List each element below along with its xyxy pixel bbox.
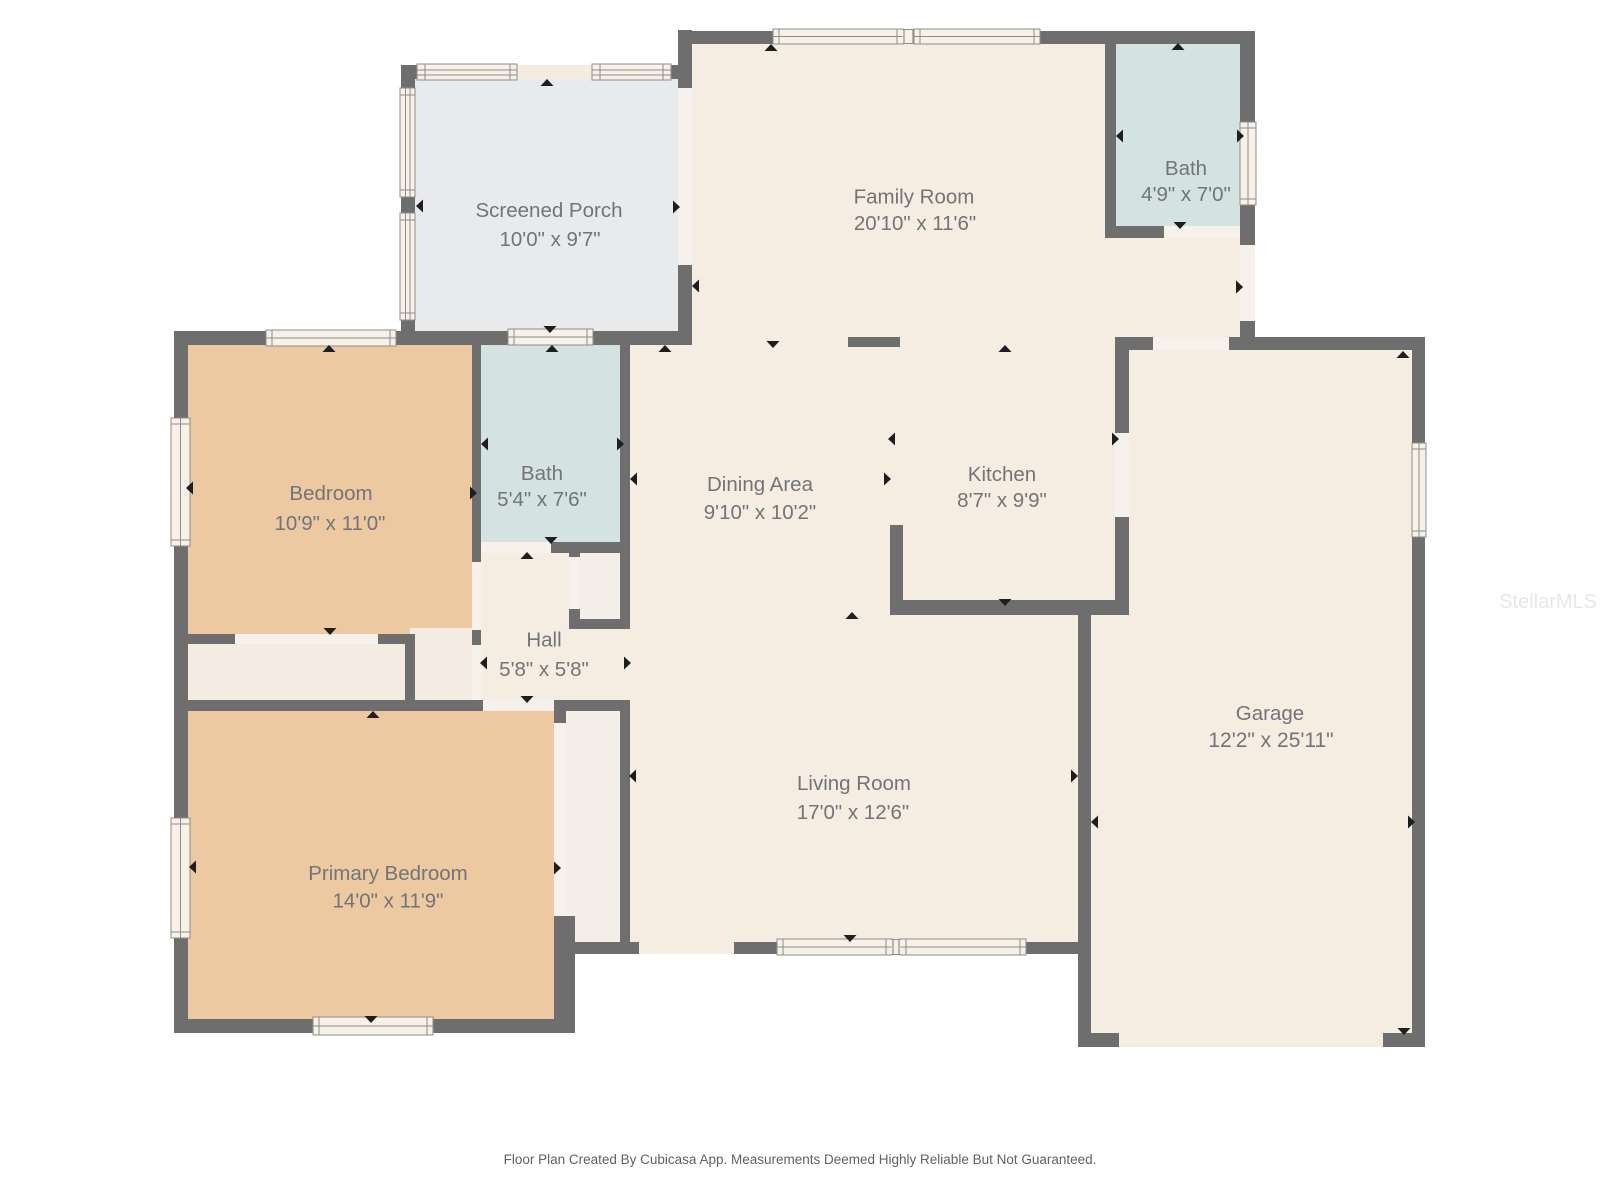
svg-text:14'0" x 11'9": 14'0" x 11'9" xyxy=(333,890,444,913)
svg-text:Dining Area: Dining Area xyxy=(707,473,814,496)
svg-text:9'10" x 10'2": 9'10" x 10'2" xyxy=(704,501,816,524)
svg-text:Bath: Bath xyxy=(521,462,563,485)
svg-text:12'2" x 25'11": 12'2" x 25'11" xyxy=(1208,729,1333,752)
svg-text:Bath: Bath xyxy=(1165,157,1207,180)
svg-text:10'9" x 11'0": 10'9" x 11'0" xyxy=(275,512,386,535)
svg-text:5'4" x 7'6": 5'4" x 7'6" xyxy=(497,488,587,511)
svg-text:17'0" x 12'6": 17'0" x 12'6" xyxy=(797,801,909,824)
svg-text:StellarMLS: StellarMLS xyxy=(1499,591,1597,613)
svg-text:10'0" x 9'7": 10'0" x 9'7" xyxy=(499,228,600,251)
svg-text:4'9" x 7'0": 4'9" x 7'0" xyxy=(1141,183,1231,206)
svg-text:8'7" x 9'9": 8'7" x 9'9" xyxy=(957,489,1047,512)
svg-text:Screened Porch: Screened Porch xyxy=(475,199,622,222)
svg-text:Family Room: Family Room xyxy=(854,186,975,209)
svg-text:Living Room: Living Room xyxy=(797,772,911,795)
svg-text:Garage: Garage xyxy=(1236,702,1304,725)
svg-text:Hall: Hall xyxy=(526,629,561,652)
svg-text:Kitchen: Kitchen xyxy=(968,463,1036,486)
svg-text:Floor Plan Created By Cubicasa: Floor Plan Created By Cubicasa App. Meas… xyxy=(504,1152,1097,1167)
svg-text:Primary Bedroom: Primary Bedroom xyxy=(308,862,468,885)
svg-text:20'10" x 11'6": 20'10" x 11'6" xyxy=(854,212,976,235)
svg-text:Bedroom: Bedroom xyxy=(289,482,372,505)
svg-text:5'8" x 5'8": 5'8" x 5'8" xyxy=(499,658,589,681)
